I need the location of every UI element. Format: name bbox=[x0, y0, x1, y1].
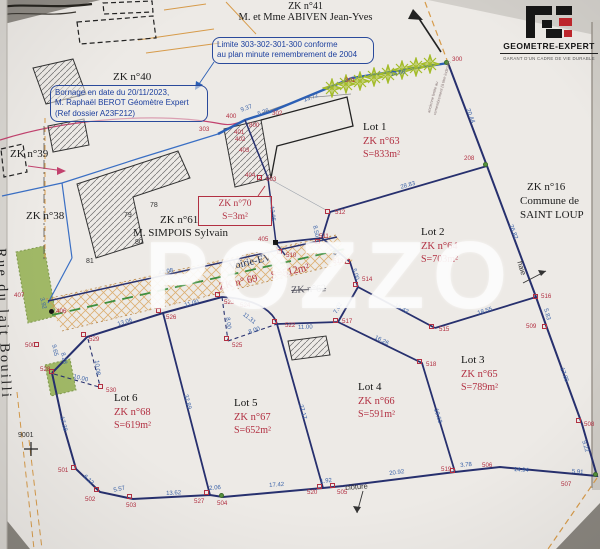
survey-point-label: 504 bbox=[217, 500, 227, 507]
survey-point-label: 403 bbox=[239, 147, 249, 154]
measurement-label: 5.57 bbox=[113, 486, 126, 494]
survey-point-label: 402 bbox=[235, 136, 245, 143]
survey-point-marker bbox=[34, 342, 39, 347]
note-bornage: Bornage en date du 20/11/2023, M. Raphaë… bbox=[50, 85, 208, 122]
measurement-label: 14.94 bbox=[514, 467, 529, 474]
measurement-label: 17.38 bbox=[58, 416, 67, 432]
measurement-label: 8.28 bbox=[59, 352, 67, 365]
survey-point-label: 501 bbox=[58, 467, 68, 474]
note-bornage-line: (Ref dossier A23F212) bbox=[55, 109, 203, 119]
note-bornage-line: Bornage en date du 20/11/2023, bbox=[55, 88, 203, 98]
note-bornage-line: M. Raphaël BEROT Géomètre Expert bbox=[55, 98, 203, 108]
survey-point-label: 404 bbox=[245, 172, 255, 179]
plan-text-parcel: ZK n°39 bbox=[10, 148, 48, 160]
measurement-label: 10.00 bbox=[73, 374, 89, 383]
lot-label: Lot 1ZK n°63S=833m² bbox=[363, 121, 400, 162]
survey-point-label: 301 bbox=[345, 77, 355, 84]
measurement-label: 10.08 bbox=[93, 360, 101, 376]
lot-label: Lot 3ZK n°65S=789m² bbox=[461, 354, 498, 395]
survey-point-label: 520 bbox=[307, 489, 317, 496]
owner-name: M. et Mme ABIVEN Jean-Yves bbox=[218, 12, 393, 23]
survey-point-marker bbox=[317, 484, 322, 489]
measurement-label: 13.62 bbox=[166, 490, 181, 497]
survey-point-label: 800 bbox=[249, 122, 259, 129]
lot-label: Lot 4ZK n°66S=591m² bbox=[358, 381, 395, 422]
lot-label: Lot 5ZK n°67S=652m² bbox=[234, 397, 271, 438]
survey-point-marker bbox=[127, 494, 132, 499]
survey-point-marker bbox=[257, 175, 262, 180]
measurement-label: 5.83 bbox=[542, 308, 551, 321]
plan-text-parcel: Commune de bbox=[520, 195, 579, 207]
scanned-survey-plan: 20.4413.7213.869.375.2628.838.5012.0526.… bbox=[0, 0, 600, 549]
survey-point-marker bbox=[98, 384, 103, 389]
survey-point-marker bbox=[49, 369, 54, 374]
survey-point-marker bbox=[49, 309, 54, 314]
plan-text-parcel: ZK n°16 bbox=[527, 181, 565, 193]
survey-point-marker bbox=[533, 294, 538, 299]
measurement-label: 20.44 bbox=[464, 108, 475, 124]
lot-label: Lot 6ZK n°68S=619m² bbox=[114, 392, 151, 433]
survey-point-marker bbox=[94, 487, 99, 492]
survey-point-label: 603 bbox=[266, 176, 276, 183]
lot-name: Lot 1 bbox=[363, 121, 400, 135]
survey-point-label: 401 bbox=[234, 129, 244, 136]
measurement-label: 28.83 bbox=[400, 181, 416, 191]
measurement-label: 13.06 bbox=[117, 318, 133, 328]
survey-point-label: 303 bbox=[199, 126, 209, 133]
lot-parcel-ref: ZK n°65 bbox=[461, 368, 498, 382]
plan-text-parcel: SAINT LOUP bbox=[520, 209, 584, 221]
survey-point-marker bbox=[204, 490, 209, 495]
plan-text-parcel: ZK n°38 bbox=[26, 210, 64, 222]
survey-point-marker bbox=[576, 418, 581, 423]
measurement-label: 17.42 bbox=[269, 482, 284, 489]
survey-point-label: 529 bbox=[89, 336, 99, 343]
survey-point-label: 518 bbox=[426, 361, 436, 368]
measurement-label: 16.26 bbox=[373, 335, 389, 347]
lot-name: Lot 4 bbox=[358, 381, 395, 395]
plan-text-parcel: ZK n°40 bbox=[113, 71, 151, 83]
parcel-ref: ZK n°41 bbox=[218, 1, 393, 12]
lot-parcel-ref: ZK n°67 bbox=[234, 411, 271, 425]
measurement-label: 9.65 bbox=[50, 344, 58, 357]
measurement-label: 20.92 bbox=[389, 469, 405, 477]
measurement-label: 3.78 bbox=[460, 462, 472, 469]
plan-title: ZK n°41 M. et Mme ABIVEN Jean-Yves bbox=[218, 1, 393, 23]
survey-point-label: 407 bbox=[14, 292, 24, 299]
survey-point-marker bbox=[330, 483, 335, 488]
lot-name: Lot 6 bbox=[114, 392, 151, 406]
survey-point-label: 508 bbox=[584, 421, 594, 428]
pozzo-watermark: POZZO bbox=[145, 221, 516, 331]
survey-point-marker bbox=[483, 162, 488, 167]
measurement-label: 13.72 bbox=[303, 93, 319, 104]
measurement-label: 9.37 bbox=[240, 104, 253, 114]
survey-point-label: 509 bbox=[526, 323, 536, 330]
survey-point-label: 506 bbox=[482, 462, 492, 469]
survey-point-marker bbox=[219, 493, 224, 498]
survey-point-label: 208 bbox=[464, 155, 474, 162]
survey-point-label: 406 bbox=[56, 308, 66, 315]
survey-point-marker bbox=[417, 359, 422, 364]
plan-text-bnum: 78 bbox=[150, 202, 158, 209]
plan-text-bnum: 81 bbox=[86, 258, 94, 265]
plan-text-annot: haie bbox=[515, 260, 528, 276]
survey-point-marker bbox=[81, 332, 86, 337]
geometre-expert-logo: GEOMETRE-EXPERT GARANT D'UN CADRE DE VIE… bbox=[500, 6, 598, 61]
survey-point-label: 302 bbox=[272, 110, 282, 117]
lot-parcel-ref: ZK n°63 bbox=[363, 135, 400, 149]
lot-area: S=591m² bbox=[358, 408, 395, 422]
survey-point-label: 512 bbox=[335, 209, 345, 216]
survey-point-marker bbox=[71, 465, 76, 470]
survey-point-marker bbox=[325, 209, 330, 214]
survey-point-label: 300 bbox=[452, 56, 462, 63]
measurement-label: 6.12 bbox=[82, 474, 95, 486]
lot-area: S=789m² bbox=[461, 381, 498, 395]
measurement-label: 2.06 bbox=[209, 485, 221, 492]
measurement-label: 5.26 bbox=[257, 108, 270, 118]
survey-point-marker bbox=[593, 472, 598, 477]
lot-area: S=652m² bbox=[234, 424, 271, 438]
note-limite: Limite 303-302-301-300 conforme au plan … bbox=[212, 37, 374, 64]
survey-point-marker bbox=[542, 324, 547, 329]
measurement-label: 5.91 bbox=[572, 469, 584, 476]
lot-name: Lot 5 bbox=[234, 397, 271, 411]
survey-point-label: 525 bbox=[232, 342, 242, 349]
survey-point-label: 502 bbox=[85, 496, 95, 503]
measurement-label: 17.85 bbox=[558, 367, 569, 383]
survey-point-label: 527 bbox=[194, 498, 204, 505]
measurement-label: 32.89 bbox=[182, 394, 192, 410]
measurement-label: 9.22 bbox=[580, 440, 589, 453]
lot-area: S=833m² bbox=[363, 148, 400, 162]
measurement-label: 19.63 bbox=[432, 408, 442, 424]
plan-text-bnum: 80 bbox=[135, 239, 143, 246]
survey-point-marker bbox=[224, 336, 229, 341]
geometre-expert-logo-icon bbox=[526, 6, 572, 38]
survey-point-label: 503 bbox=[126, 502, 136, 509]
zk70-ref: ZK n°70 bbox=[199, 198, 271, 211]
measurement-label: 27.17 bbox=[297, 404, 307, 420]
measurement-label: 3.92 bbox=[38, 297, 47, 310]
survey-point-label: 507 bbox=[561, 481, 571, 488]
plan-text-annot: clôture bbox=[345, 481, 368, 492]
lot-area: S=619m² bbox=[114, 419, 151, 433]
note-limite-line: au plan minute remembrement de 2004 bbox=[217, 50, 369, 60]
survey-point-label: 516 bbox=[541, 293, 551, 300]
measurement-label: 13.86 bbox=[390, 69, 406, 78]
plan-text-bnum: 79 bbox=[124, 212, 132, 219]
survey-point-label: 400 bbox=[226, 113, 236, 120]
lot-name: Lot 3 bbox=[461, 354, 498, 368]
plan-text-street: Rue du lait Bouilli bbox=[0, 248, 13, 400]
plan-text-bnum: 9001 bbox=[18, 432, 34, 439]
logo-name: GEOMETRE-EXPERT bbox=[500, 41, 598, 54]
lot-parcel-ref: ZK n°68 bbox=[114, 406, 151, 420]
lot-parcel-ref: ZK n°66 bbox=[358, 395, 395, 409]
survey-point-marker bbox=[450, 468, 455, 473]
note-limite-line: Limite 303-302-301-300 conforme bbox=[217, 40, 369, 50]
logo-tagline: GARANT D'UN CADRE DE VIE DURABLE bbox=[500, 56, 598, 61]
